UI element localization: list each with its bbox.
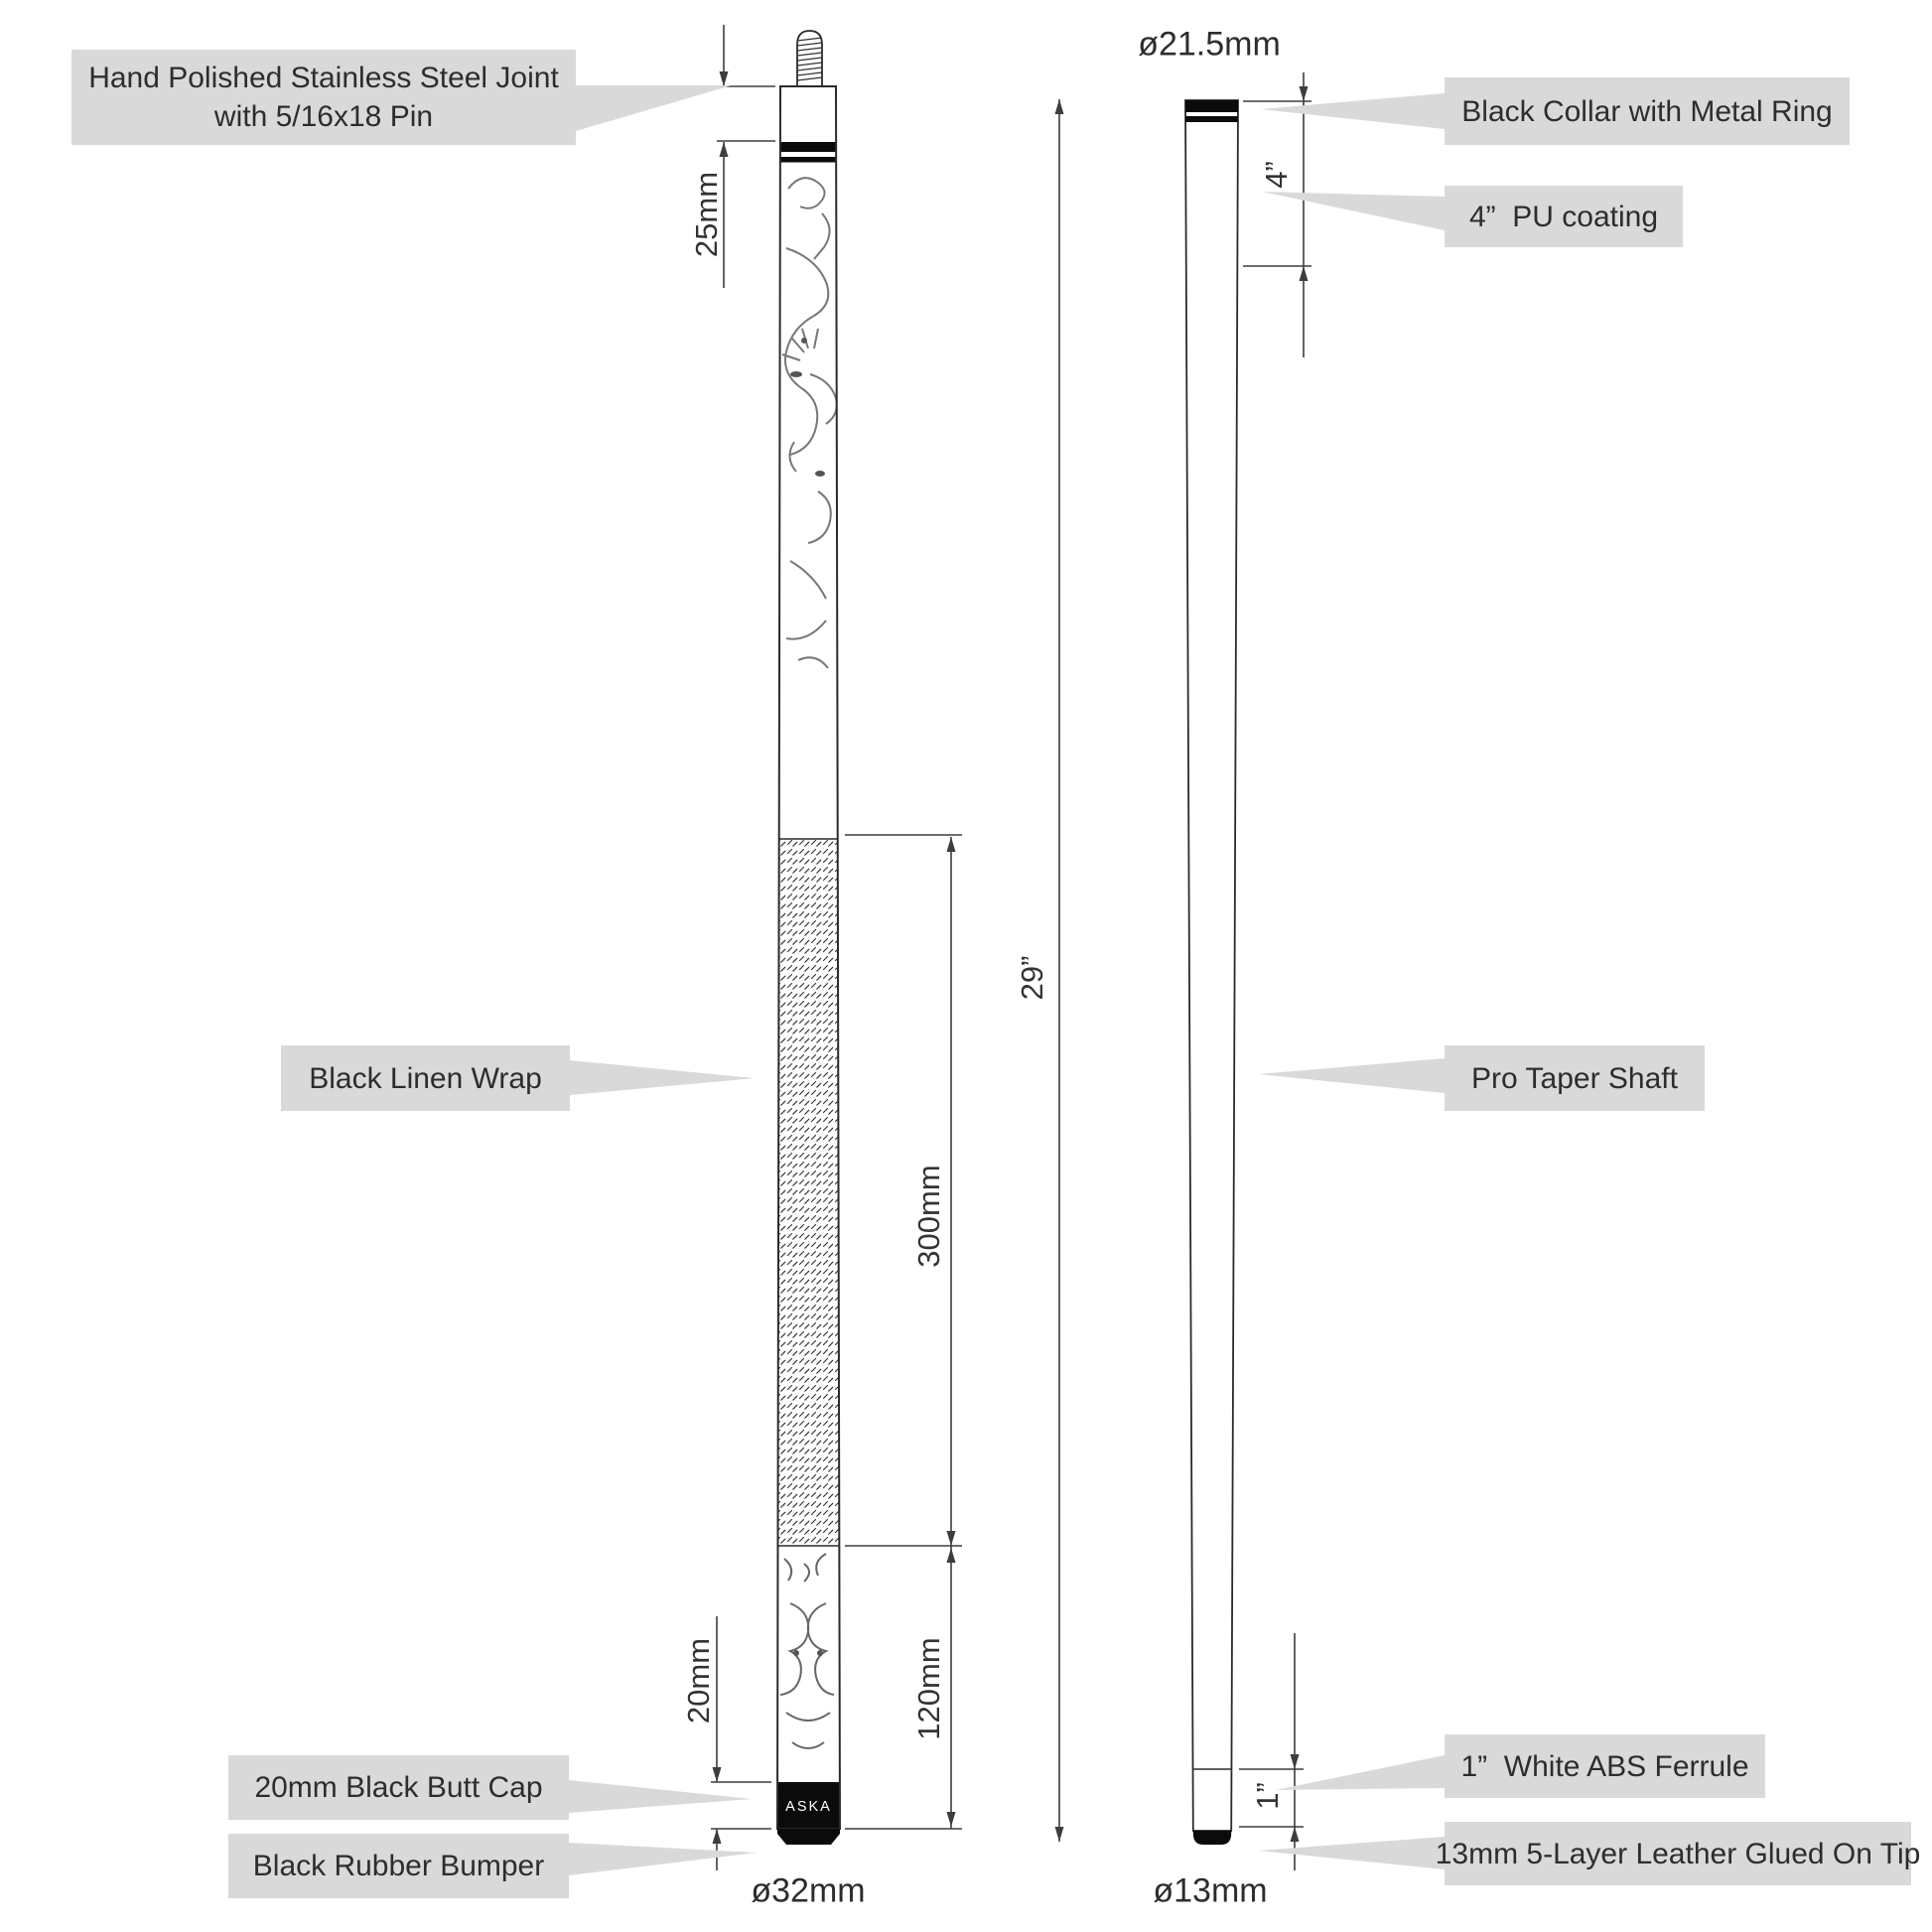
leader-wrap xyxy=(570,1060,755,1095)
leather-tip xyxy=(1193,1831,1231,1845)
shaft-section-drawing xyxy=(1181,94,1311,1857)
joint-label-line2: with 5/16x18 Pin xyxy=(214,97,433,136)
shaft-outline xyxy=(1185,100,1238,1831)
shaft-collar-ring xyxy=(1185,100,1238,112)
joint-label-line1: Hand Polished Stainless Steel Joint xyxy=(88,59,559,97)
cue-spec-diagram: ASKA Hand Polished Stainless Steel Joint… xyxy=(0,0,1932,1932)
butt-section-drawing: ASKA xyxy=(774,25,844,1847)
brand-text: ASKA xyxy=(785,1799,832,1815)
callout-pro-taper: Pro Taper Shaft xyxy=(1445,1045,1705,1111)
butt-metal-ring xyxy=(776,157,842,163)
callout-collar: Black Collar with Metal Ring xyxy=(1445,77,1850,145)
leader-bumper xyxy=(569,1843,757,1875)
dim-20mm-lines xyxy=(711,1616,771,1870)
dimension-overlay xyxy=(0,0,1932,1932)
callout-joint: Hand Polished Stainless Steel Joint with… xyxy=(71,50,576,145)
pu-coating-label: 4” PU coating xyxy=(1469,198,1658,236)
leader-butt-cap xyxy=(569,1780,752,1813)
collar-label: Black Collar with Metal Ring xyxy=(1461,92,1832,131)
callout-ferrule: 1” White ABS Ferrule xyxy=(1445,1734,1765,1798)
ferrule-label: 1” White ABS Ferrule xyxy=(1460,1747,1748,1786)
callout-wrap: Black Linen Wrap xyxy=(281,1045,570,1111)
callout-tip: 13mm 5-Layer Leather Glued On Tip xyxy=(1445,1822,1911,1885)
linen-wrap-texture xyxy=(776,839,842,1546)
rubber-bumper xyxy=(777,1829,840,1845)
leader-joint xyxy=(576,85,732,131)
shaft-metal-ring xyxy=(1185,116,1238,122)
pro-taper-label: Pro Taper Shaft xyxy=(1471,1059,1678,1098)
wrap-label: Black Linen Wrap xyxy=(309,1059,542,1098)
callout-bumper: Black Rubber Bumper xyxy=(228,1834,569,1898)
callout-leaders xyxy=(569,85,1445,1875)
callout-pu-coating: 4” PU coating xyxy=(1445,186,1683,247)
tip-label: 13mm 5-Layer Leather Glued On Tip xyxy=(1436,1835,1921,1873)
butt-collar-ring xyxy=(776,142,842,152)
callout-butt-cap: 20mm Black Butt Cap xyxy=(228,1755,569,1820)
bumper-label: Black Rubber Bumper xyxy=(253,1847,544,1885)
butt-cap-label: 20mm Black Butt Cap xyxy=(254,1768,542,1807)
